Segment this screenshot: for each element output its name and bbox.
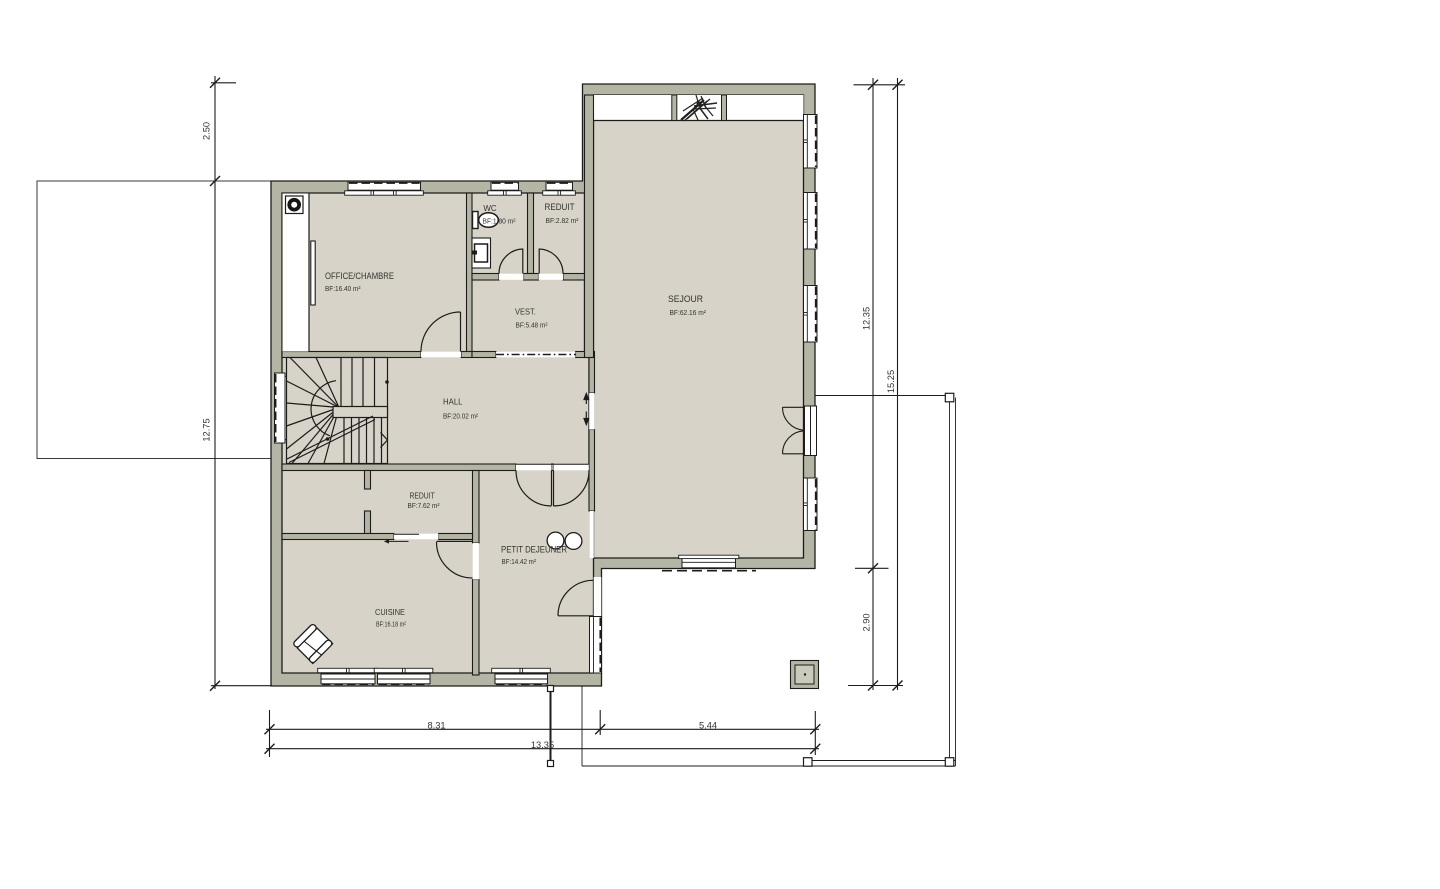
svg-text:BF:7.62 m²: BF:7.62 m²: [408, 503, 441, 510]
svg-text:BF:1.80 m²: BF:1.80 m²: [483, 219, 517, 226]
svg-text:OFFICE/CHAMBRE: OFFICE/CHAMBRE: [325, 271, 394, 281]
svg-text:VEST.: VEST.: [515, 308, 536, 317]
svg-text:BF:16.40 m²: BF:16.40 m²: [325, 286, 361, 293]
svg-text:15.25: 15.25: [886, 370, 896, 393]
svg-text:BF:20.02 m²: BF:20.02 m²: [443, 414, 479, 421]
svg-text:WC: WC: [483, 204, 497, 213]
svg-text:REDUIT: REDUIT: [545, 202, 575, 212]
svg-text:HALL: HALL: [443, 397, 463, 407]
svg-text:BF:5.48 m²: BF:5.48 m²: [516, 323, 549, 330]
svg-text:13.35: 13.35: [531, 740, 554, 750]
svg-text:2.50: 2.50: [202, 122, 212, 140]
svg-text:12.35: 12.35: [862, 307, 872, 330]
svg-text:CUISINE: CUISINE: [375, 607, 405, 617]
svg-text:5.44: 5.44: [699, 721, 717, 731]
svg-text:BF:62.16 m²: BF:62.16 m²: [670, 310, 707, 317]
svg-text:SEJOUR: SEJOUR: [668, 294, 703, 304]
svg-text:BF:14.42 m²: BF:14.42 m²: [502, 559, 537, 566]
svg-text:PETIT DEJEUNER: PETIT DEJEUNER: [501, 545, 567, 555]
svg-text:BF:16.18 m²: BF:16.18 m²: [376, 622, 407, 629]
svg-text:2.90: 2.90: [862, 613, 872, 631]
svg-text:BF:2.82 m²: BF:2.82 m²: [546, 218, 580, 225]
svg-text:REDUIT: REDUIT: [410, 491, 435, 501]
svg-text:8.31: 8.31: [427, 721, 445, 731]
svg-text:12.75: 12.75: [202, 418, 212, 441]
